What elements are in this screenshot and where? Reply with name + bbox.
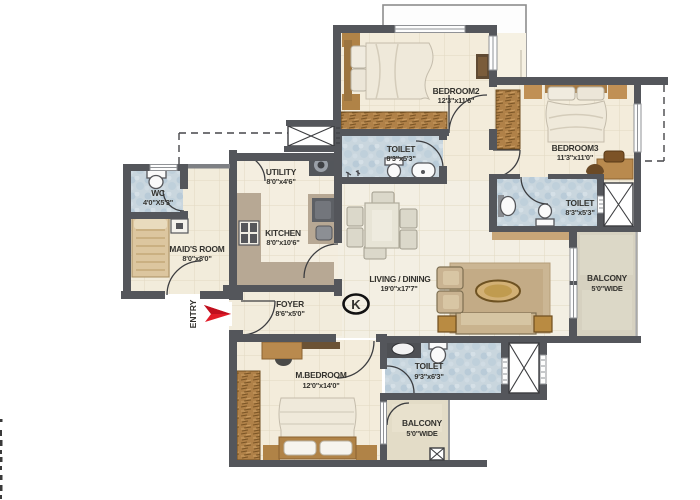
svg-text:8'3"x5'3": 8'3"x5'3" [386, 154, 416, 163]
svg-text:TOILET: TOILET [387, 144, 417, 154]
svg-text:12'3"x11'6": 12'3"x11'6" [438, 96, 475, 105]
svg-text:TOILET: TOILET [566, 198, 596, 208]
svg-text:M.BEDROOM: M.BEDROOM [295, 370, 346, 380]
svg-text:TOILET: TOILET [415, 361, 445, 371]
svg-text:8'6"x5'0": 8'6"x5'0" [275, 309, 305, 318]
svg-text:8'3"x5'3": 8'3"x5'3" [565, 208, 595, 217]
svg-text:BEDROOM3: BEDROOM3 [552, 143, 599, 153]
svg-text:ENTRY: ENTRY [188, 299, 198, 328]
svg-text:19'0"x17'7": 19'0"x17'7" [380, 284, 418, 293]
svg-text:WC: WC [151, 188, 165, 198]
svg-text:BALCONY: BALCONY [587, 273, 628, 283]
svg-text:BEDROOM2: BEDROOM2 [433, 86, 480, 96]
svg-text:LIVING / DINING: LIVING / DINING [369, 274, 430, 284]
svg-text:9'3"x6'3": 9'3"x6'3" [414, 372, 444, 381]
svg-text:8'0"x8'0": 8'0"x8'0" [182, 254, 212, 263]
svg-text:UTILITY: UTILITY [266, 167, 297, 177]
svg-text:12'0"x14'0": 12'0"x14'0" [302, 381, 340, 390]
svg-text:8'0"x4'6": 8'0"x4'6" [266, 177, 296, 186]
svg-text:BALCONY: BALCONY [402, 418, 443, 428]
svg-text:5'0"WIDE: 5'0"WIDE [591, 284, 622, 293]
svg-text:K: K [351, 297, 361, 312]
svg-text:8'0"x10'6": 8'0"x10'6" [266, 238, 300, 247]
svg-text:5'0"WIDE: 5'0"WIDE [406, 429, 437, 438]
svg-text:4'0"X5'3": 4'0"X5'3" [143, 198, 174, 207]
svg-text:11'3"x11'0": 11'3"x11'0" [557, 153, 594, 162]
svg-text:MAID'S ROOM: MAID'S ROOM [169, 244, 224, 254]
svg-text:KITCHEN: KITCHEN [265, 228, 301, 238]
svg-text:FOYER: FOYER [276, 299, 304, 309]
